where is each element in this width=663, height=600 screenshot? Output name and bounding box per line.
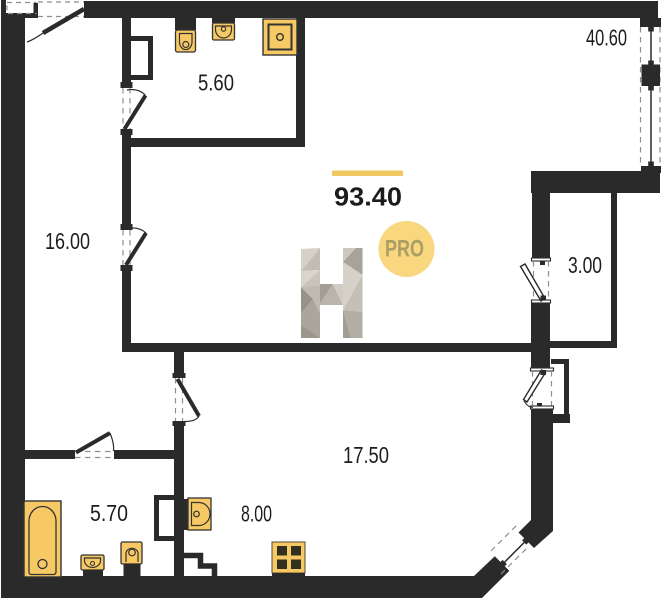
svg-text:93.40: 93.40 [334, 182, 402, 212]
svg-text:8.00: 8.00 [241, 501, 272, 527]
svg-text:PRO: PRO [385, 236, 424, 263]
svg-text:3.00: 3.00 [568, 252, 602, 278]
svg-text:5.70: 5.70 [90, 500, 128, 526]
svg-text:17.50: 17.50 [343, 442, 389, 468]
svg-text:40.60: 40.60 [586, 25, 627, 51]
svg-text:16.00: 16.00 [45, 228, 90, 254]
svg-text:5.60: 5.60 [198, 70, 234, 96]
